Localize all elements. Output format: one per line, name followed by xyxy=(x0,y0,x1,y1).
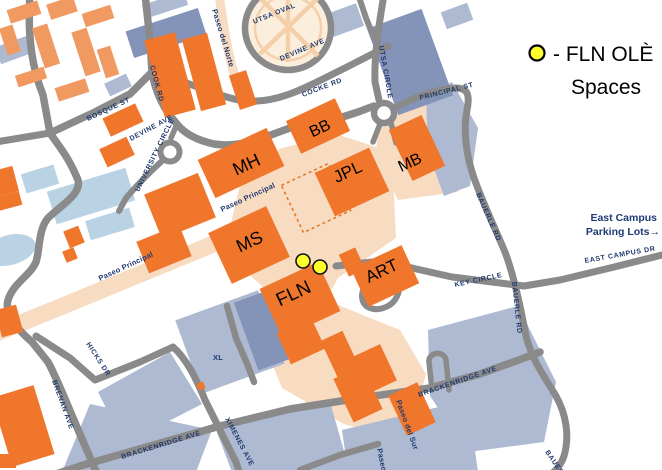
legend: - FLN OLÈ Spaces xyxy=(530,43,654,99)
east-campus-line2: Parking Lots→ xyxy=(586,226,660,238)
building-orange xyxy=(99,137,135,168)
building-dorm xyxy=(71,28,100,77)
building-dorm xyxy=(82,5,115,28)
building-dorm xyxy=(46,0,78,20)
building-dorm xyxy=(7,0,42,23)
lot-label-xl: XL xyxy=(213,353,223,362)
building-orange xyxy=(0,305,23,338)
campus-map-canvas: BOSQUE ST COOK RD DEVINE AVE DEVINE AVE … xyxy=(0,0,662,470)
east-campus-annotation: East Campus Parking Lots→ xyxy=(586,212,660,238)
legend-yellow-circle-icon xyxy=(530,46,545,61)
building-orange xyxy=(63,226,85,249)
building-dorm xyxy=(97,46,120,79)
roundabout-utsa-circle xyxy=(374,103,394,123)
building-dorm xyxy=(55,78,90,101)
building-orange xyxy=(229,70,257,110)
building-orange xyxy=(0,166,19,196)
ole-space-marker-icon xyxy=(313,260,327,274)
ole-space-marker-icon xyxy=(296,254,310,268)
building-lightblue xyxy=(21,164,59,193)
legend-line2: Spaces xyxy=(571,76,641,99)
campus-map: BOSQUE ST COOK RD DEVINE AVE DEVINE AVE … xyxy=(0,0,662,470)
building-slate xyxy=(441,3,473,29)
dorm-cluster xyxy=(0,0,119,102)
legend-line1: - FLN OLÈ xyxy=(553,43,653,66)
east-campus-line1: East Campus xyxy=(590,212,657,224)
building-orange xyxy=(62,247,78,263)
street-label-bauerle-rd-1: BAUERLE RD xyxy=(474,192,502,243)
road-branch-west xyxy=(0,133,50,142)
building-orange xyxy=(0,454,16,468)
